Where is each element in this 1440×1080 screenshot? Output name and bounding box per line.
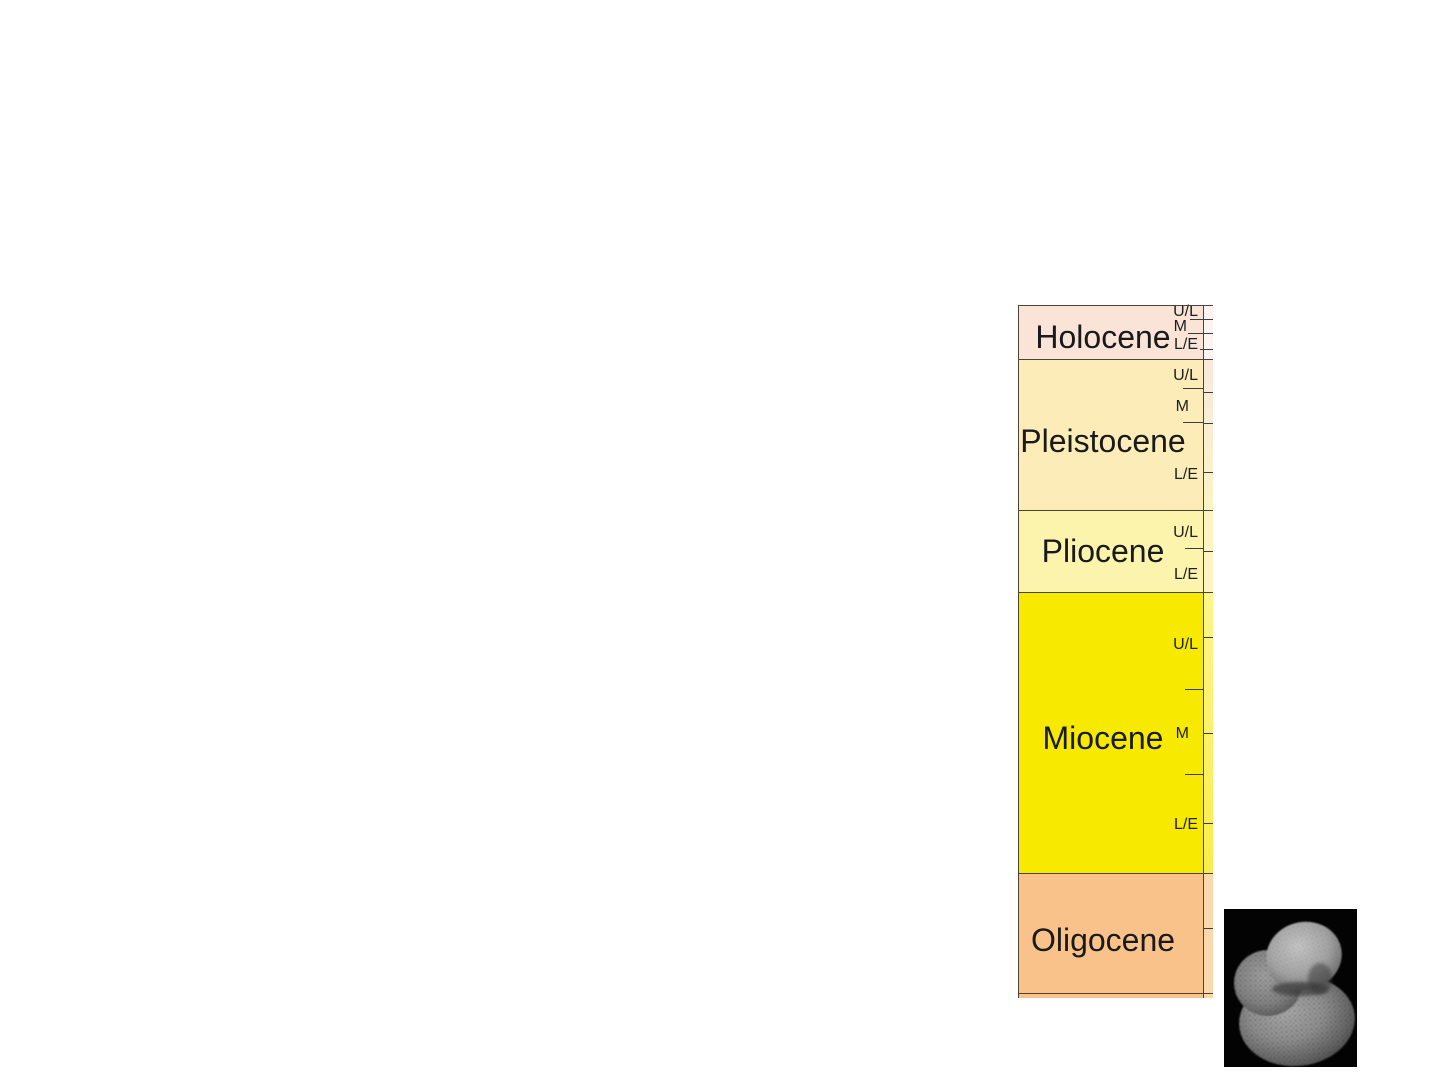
epoch-label-pliocene: Pliocene: [1018, 530, 1188, 572]
strip-tick-pleistocene: [1203, 423, 1213, 424]
subepoch-label-pliocene-l-e: L/E: [1174, 565, 1198, 585]
subepoch-tick-pleistocene: [1183, 388, 1203, 389]
epoch-label-pleistocene: Pleistocene: [1018, 420, 1188, 462]
subepoch-tick-miocene: [1185, 774, 1203, 775]
strip-tick-pleistocene: [1203, 472, 1213, 473]
epoch-strip-holocene: [1203, 305, 1213, 359]
page-background: HoloceneU/LML/EPleistoceneU/LML/EPliocen…: [0, 0, 1440, 1080]
subepoch-label-pleistocene-l-e: L/E: [1174, 465, 1198, 485]
epoch-label-holocene: Holocene: [1018, 316, 1188, 358]
subepoch-label-pliocene-u-l: U/L: [1173, 523, 1198, 543]
subepoch-label-miocene-m: M: [1176, 724, 1189, 744]
epoch-boundary-line: [1018, 592, 1213, 593]
geologic-time-column: HoloceneU/LML/EPleistoceneU/LML/EPliocen…: [1018, 305, 1213, 998]
column-strip-separator: [1203, 305, 1204, 998]
epoch-boundary-line: [1018, 359, 1213, 360]
epoch-boundary-line: [1018, 510, 1213, 511]
subepoch-tick-miocene: [1185, 689, 1203, 690]
epoch-strip-oligocene: [1203, 873, 1213, 993]
column-left-border: [1018, 305, 1019, 998]
subepoch-label-holocene-m: M: [1174, 317, 1187, 337]
subepoch-tick-pliocene: [1185, 548, 1203, 549]
foraminifera-illustration: [1224, 909, 1357, 1067]
strip-tick-pleistocene: [1203, 392, 1213, 393]
epoch-boundary-line: [1018, 873, 1213, 874]
foraminifera-image: [1224, 909, 1357, 1067]
strip-tick-pliocene: [1203, 551, 1213, 552]
subepoch-label-holocene-l-e: L/E: [1174, 335, 1198, 355]
subepoch-label-miocene-u-l: U/L: [1173, 635, 1198, 655]
epoch-label-oligocene: Oligocene: [1018, 919, 1188, 961]
subepoch-tick-holocene: [1188, 333, 1213, 334]
subepoch-tick-holocene: [1200, 349, 1213, 350]
strip-tick-oligocene: [1203, 928, 1213, 929]
epoch-label-miocene: Miocene: [1018, 717, 1188, 759]
strip-tick-miocene: [1203, 733, 1213, 734]
epoch-boundary-line: [1018, 305, 1213, 306]
subepoch-label-pleistocene-m: M: [1176, 397, 1189, 417]
subepoch-label-miocene-l-e: L/E: [1174, 815, 1198, 835]
strip-tick-miocene: [1203, 637, 1213, 638]
epoch-boundary-line: [1018, 993, 1213, 994]
epoch-strip-pleistocene: [1203, 359, 1213, 510]
subepoch-tick-pleistocene: [1183, 422, 1203, 423]
subepoch-tick-holocene: [1190, 319, 1213, 320]
subepoch-label-pleistocene-u-l: U/L: [1173, 366, 1198, 386]
strip-tick-miocene: [1203, 823, 1213, 824]
